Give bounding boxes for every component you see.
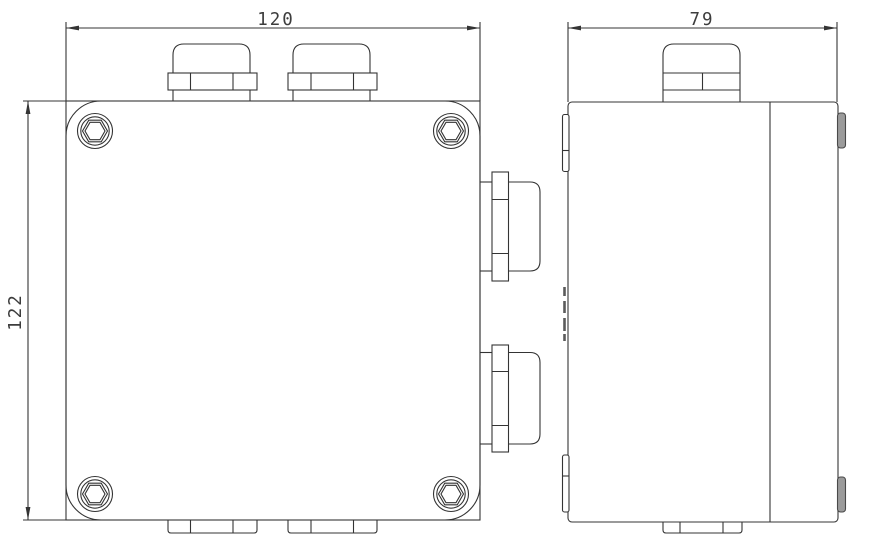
arrowhead-icon <box>824 26 837 31</box>
hex-socket-icon <box>439 120 464 142</box>
gland-nut <box>168 73 257 90</box>
arrowhead-icon <box>26 101 31 114</box>
corner-screw-top-left <box>78 114 113 149</box>
side-left-tab-upper <box>563 115 570 172</box>
arrowhead-icon <box>568 26 581 31</box>
gland-stub-bottom-side <box>663 522 742 533</box>
dimension-height: 122 <box>6 101 66 520</box>
corner-screw-bottom-left <box>78 477 113 512</box>
hex-socket-icon <box>83 120 108 142</box>
dimension-width: 120 <box>66 10 480 101</box>
edge-tab <box>563 115 570 172</box>
hex-socket-inner-icon <box>85 122 105 139</box>
gland-nut <box>492 172 509 281</box>
gland-dome <box>509 182 541 271</box>
dimension-width-label: 120 <box>257 10 295 30</box>
enclosure-front-face <box>66 101 480 520</box>
side-view <box>563 44 846 533</box>
dimension-height-label: 122 <box>6 293 26 331</box>
hex-socket-icon <box>439 483 464 505</box>
enclosure-outline-square <box>66 101 480 520</box>
drawing-root: 120 122 79 <box>6 10 846 533</box>
arrowhead-icon <box>26 507 31 520</box>
side-right-tab-upper <box>838 113 846 148</box>
hex-socket-inner-icon <box>441 122 461 139</box>
gland-stub-bottom-left <box>168 520 257 533</box>
cable-gland-right-lower <box>480 345 540 452</box>
gland-nut <box>288 73 377 90</box>
dimension-depth-label: 79 <box>689 10 714 30</box>
gland-nut <box>492 345 509 452</box>
technical-drawing-page: 120 122 79 <box>0 0 875 552</box>
side-right-tab-lower <box>838 477 846 512</box>
edge-tab <box>563 455 570 512</box>
drawing-svg: 120 122 79 <box>0 0 875 552</box>
corner-screw-top-right <box>434 114 469 149</box>
arrowhead-icon <box>66 26 79 31</box>
front-view <box>66 44 540 533</box>
arrowhead-icon <box>467 26 480 31</box>
cable-gland-right-upper <box>480 172 540 281</box>
hex-socket-icon <box>83 483 108 505</box>
gland-dome <box>509 353 541 445</box>
gland-nut <box>288 520 377 533</box>
cable-gland-top-side <box>663 44 740 102</box>
cable-gland-top-right <box>288 44 377 101</box>
side-left-tab-lower <box>563 455 570 512</box>
cable-gland-top-left <box>168 44 257 101</box>
hex-socket-inner-icon <box>441 485 461 502</box>
gland-stub-bottom-right <box>288 520 377 533</box>
enclosure-side-face <box>568 102 838 522</box>
gland-nut <box>663 522 742 533</box>
hex-socket-inner-icon <box>85 485 105 502</box>
corner-screw-bottom-right <box>434 477 469 512</box>
gland-nut <box>168 520 257 533</box>
